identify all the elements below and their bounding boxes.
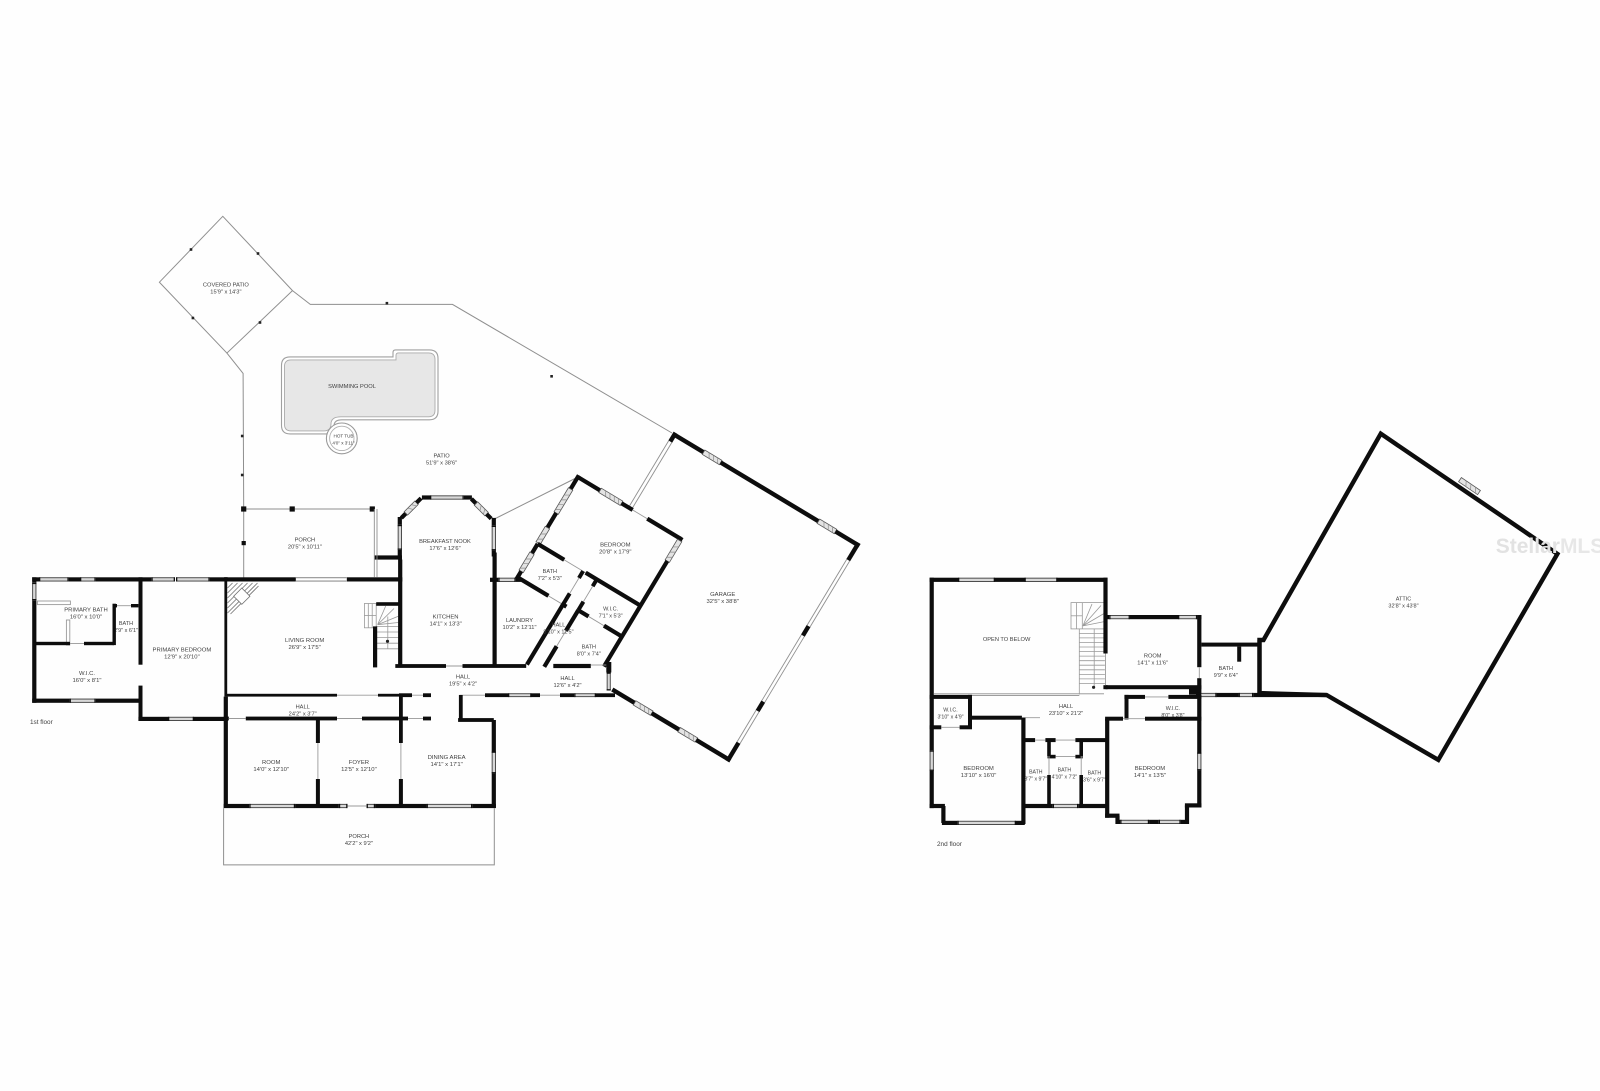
svg-text:HALL: HALL [560,676,574,682]
svg-text:PRIMARY BATH: PRIMARY BATH [64,607,108,613]
svg-text:BATH: BATH [1029,769,1043,775]
svg-text:COVERED PATIO: COVERED PATIO [203,282,250,288]
svg-text:9'9" x 6'4": 9'9" x 6'4" [1214,673,1238,679]
svg-text:4'0" x 3'11": 4'0" x 3'11" [332,441,355,446]
svg-text:32'8" x 43'8": 32'8" x 43'8" [1388,603,1418,609]
svg-text:BATH: BATH [1219,666,1233,672]
svg-text:20'8" x 17'9": 20'8" x 17'9" [599,550,631,556]
svg-text:OPEN TO BELOW: OPEN TO BELOW [983,637,1031,643]
svg-text:W.I.C.: W.I.C. [1166,706,1180,712]
svg-text:19'5" x 4'2": 19'5" x 4'2" [449,681,477,687]
svg-text:LIVING ROOM: LIVING ROOM [285,638,324,644]
svg-text:BATH: BATH [1088,770,1102,776]
svg-text:15'9" x 14'3": 15'9" x 14'3" [210,289,241,295]
svg-text:4'10" x 7'2": 4'10" x 7'2" [1052,775,1078,781]
svg-text:PORCH: PORCH [295,538,316,544]
svg-text:HALL: HALL [552,622,566,628]
svg-text:23'10" x 21'2": 23'10" x 21'2" [1049,711,1083,717]
svg-text:PATIO: PATIO [433,454,450,460]
svg-text:8'10" x 12'5": 8'10" x 12'5" [543,629,573,635]
svg-text:2nd floor: 2nd floor [937,841,963,848]
svg-text:BREAKFAST NOOK: BREAKFAST NOOK [419,539,471,545]
svg-text:8'0" x 7'4": 8'0" x 7'4" [577,652,601,658]
svg-text:14'0" x 12'10": 14'0" x 12'10" [253,767,289,773]
svg-text:BATH: BATH [119,621,133,627]
svg-text:HALL: HALL [456,674,470,680]
svg-text:13'10" x 16'0": 13'10" x 16'0" [961,773,997,779]
svg-text:14'1" x 13'5": 14'1" x 13'5" [1134,773,1166,779]
svg-text:ROOM: ROOM [262,760,280,766]
svg-text:7'1" x 5'3": 7'1" x 5'3" [599,613,623,619]
svg-text:HALL: HALL [1059,704,1073,710]
svg-text:PORCH: PORCH [349,834,370,840]
svg-text:24'2" x 3'7": 24'2" x 3'7" [289,711,317,717]
svg-text:26'9" x 17'5": 26'9" x 17'5" [288,645,320,651]
svg-text:12'5" x 12'10": 12'5" x 12'10" [341,767,377,773]
svg-text:FOYER: FOYER [349,760,369,766]
svg-text:32'5" x 38'8": 32'5" x 38'8" [707,599,739,605]
svg-text:BEDROOM: BEDROOM [963,766,994,772]
svg-text:HALL: HALL [296,704,310,710]
svg-text:16'0" x 10'0": 16'0" x 10'0" [70,614,102,620]
svg-text:GARAGE: GARAGE [710,592,735,598]
svg-text:SWIMMING POOL: SWIMMING POOL [328,384,376,390]
svg-text:14'1" x 11'6": 14'1" x 11'6" [1137,660,1168,666]
svg-text:16'0" x 8'1": 16'0" x 8'1" [72,678,101,684]
svg-text:17'6" x 12'6": 17'6" x 12'6" [429,546,460,552]
svg-text:W.I.C.: W.I.C. [943,708,957,714]
svg-text:BEDROOM: BEDROOM [600,543,631,549]
svg-text:W.I.C.: W.I.C. [603,606,618,612]
svg-text:StellarMLS: StellarMLS [1496,535,1600,558]
svg-text:3'10" x 4'9": 3'10" x 4'9" [937,715,963,721]
svg-text:BATH: BATH [1058,768,1072,774]
svg-text:14'1" x 13'3": 14'1" x 13'3" [429,622,461,628]
svg-text:KITCHEN: KITCHEN [433,615,459,621]
svg-text:BATH: BATH [543,569,557,575]
svg-text:DINING AREA: DINING AREA [428,755,466,761]
svg-text:42'2" x 9'2": 42'2" x 9'2" [345,841,373,847]
svg-text:2'9" x 6'1": 2'9" x 6'1" [114,628,138,634]
svg-text:3'7" x 9'7": 3'7" x 9'7" [1024,776,1047,782]
svg-text:7'2" x 5'3": 7'2" x 5'3" [538,576,562,582]
svg-text:20'5" x 10'11": 20'5" x 10'11" [288,545,322,551]
svg-text:PRIMARY BEDROOM: PRIMARY BEDROOM [153,648,212,654]
svg-text:ATTIC: ATTIC [1396,596,1412,602]
svg-text:BATH: BATH [582,645,596,651]
svg-text:BEDROOM: BEDROOM [1135,766,1166,772]
svg-text:1st floor: 1st floor [30,719,54,726]
svg-text:W.I.C.: W.I.C. [79,671,95,677]
svg-text:ROOM: ROOM [1144,653,1162,659]
svg-text:LAUNDRY: LAUNDRY [506,618,533,624]
svg-text:3'6" x 9'7": 3'6" x 9'7" [1083,777,1106,783]
svg-text:12'9" x 20'10": 12'9" x 20'10" [164,655,200,661]
svg-text:12'6" x 4'2": 12'6" x 4'2" [553,683,581,689]
svg-text:51'9" x 38'6": 51'9" x 38'6" [426,461,457,467]
svg-text:14'1" x 17'1": 14'1" x 17'1" [430,762,462,768]
svg-text:HOT TUB: HOT TUB [334,434,354,439]
svg-text:10'2" x 12'11": 10'2" x 12'11" [503,625,537,631]
